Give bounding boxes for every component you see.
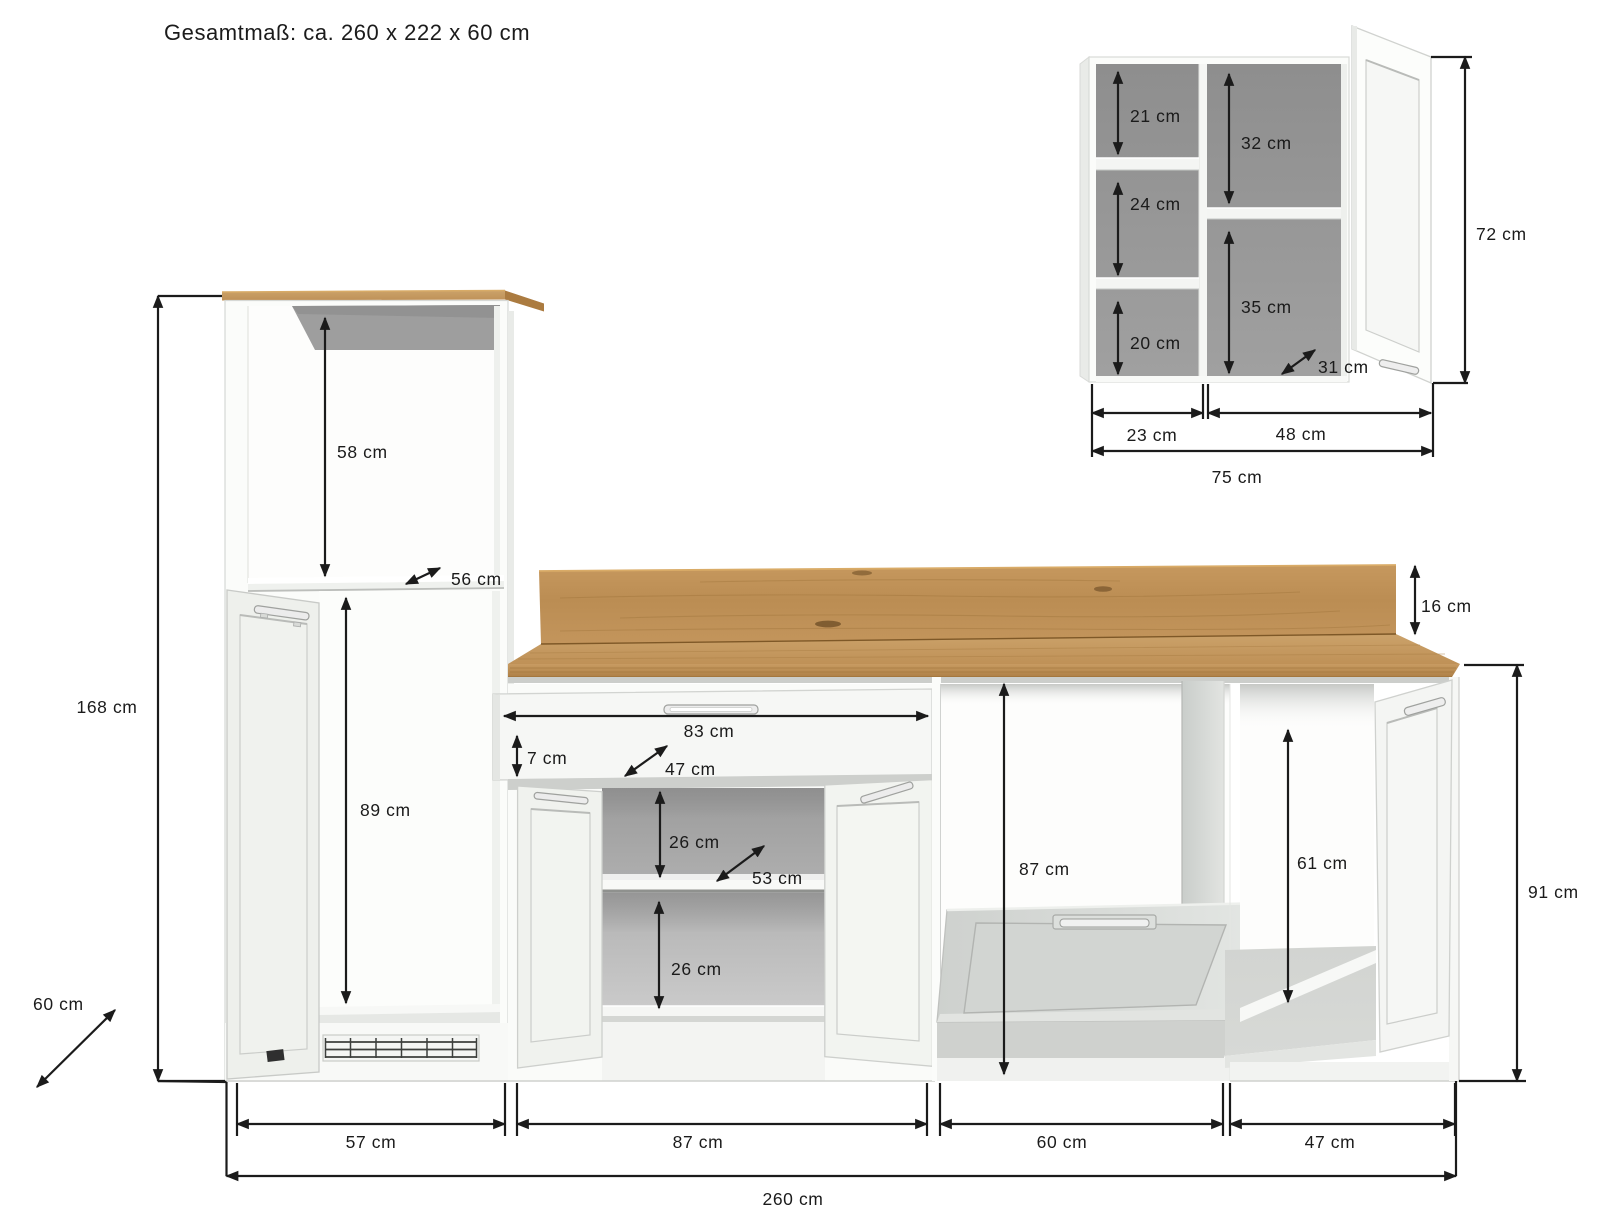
svg-text:53 cm: 53 cm [752, 868, 803, 888]
svg-text:32 cm: 32 cm [1241, 133, 1292, 153]
svg-text:87 cm: 87 cm [673, 1132, 724, 1152]
svg-text:56 cm: 56 cm [451, 569, 502, 589]
svg-text:260 cm: 260 cm [763, 1189, 824, 1209]
svg-text:31 cm: 31 cm [1318, 357, 1369, 377]
svg-text:60 cm: 60 cm [1037, 1132, 1088, 1152]
svg-text:20 cm: 20 cm [1130, 333, 1181, 353]
svg-text:7 cm: 7 cm [527, 748, 567, 768]
svg-text:35 cm: 35 cm [1241, 297, 1292, 317]
svg-text:75 cm: 75 cm [1212, 467, 1263, 487]
svg-text:168 cm: 168 cm [77, 697, 138, 717]
svg-text:91 cm: 91 cm [1528, 882, 1579, 902]
svg-text:89 cm: 89 cm [360, 800, 411, 820]
svg-text:72 cm: 72 cm [1476, 224, 1527, 244]
svg-text:26 cm: 26 cm [671, 959, 722, 979]
svg-text:83 cm: 83 cm [684, 721, 735, 741]
svg-text:48 cm: 48 cm [1276, 424, 1327, 444]
svg-text:60 cm: 60 cm [33, 994, 84, 1014]
svg-text:24 cm: 24 cm [1130, 194, 1181, 214]
svg-text:47 cm: 47 cm [1305, 1132, 1356, 1152]
svg-text:58 cm: 58 cm [337, 442, 388, 462]
svg-text:21 cm: 21 cm [1130, 106, 1181, 126]
svg-text:26 cm: 26 cm [669, 832, 720, 852]
svg-text:47 cm: 47 cm [665, 759, 716, 779]
svg-text:61 cm: 61 cm [1297, 853, 1348, 873]
svg-text:Gesamtmaß: ca. 260 x 222 x 60: Gesamtmaß: ca. 260 x 222 x 60 cm [164, 20, 530, 45]
svg-text:23 cm: 23 cm [1127, 425, 1178, 445]
svg-text:57 cm: 57 cm [346, 1132, 397, 1152]
svg-text:16 cm: 16 cm [1421, 596, 1472, 616]
svg-text:87 cm: 87 cm [1019, 859, 1070, 879]
